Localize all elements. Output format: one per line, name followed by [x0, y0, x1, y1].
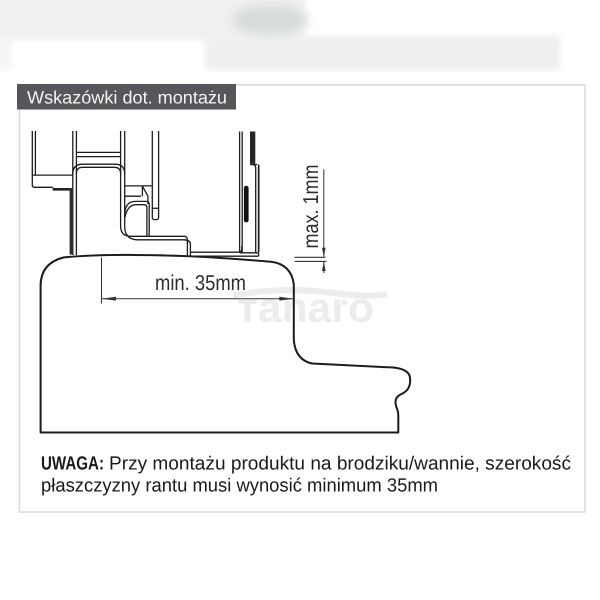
svg-text:płaszczyzny rantu musi wynosić: płaszczyzny rantu musi wynosić minimum 3… — [41, 476, 438, 497]
svg-text:Przy montażu produktu na brodz: Przy montażu produktu na brodziku/wannie… — [109, 454, 571, 475]
svg-text:Wskazówki dot. montażu: Wskazówki dot. montażu — [27, 88, 227, 108]
svg-text:max. 1mm: max. 1mm — [299, 165, 323, 249]
svg-text:UWAGA:: UWAGA: — [41, 454, 104, 475]
svg-text:тanaro: тanaro — [237, 284, 374, 331]
svg-text:min. 35mm: min. 35mm — [155, 271, 246, 295]
